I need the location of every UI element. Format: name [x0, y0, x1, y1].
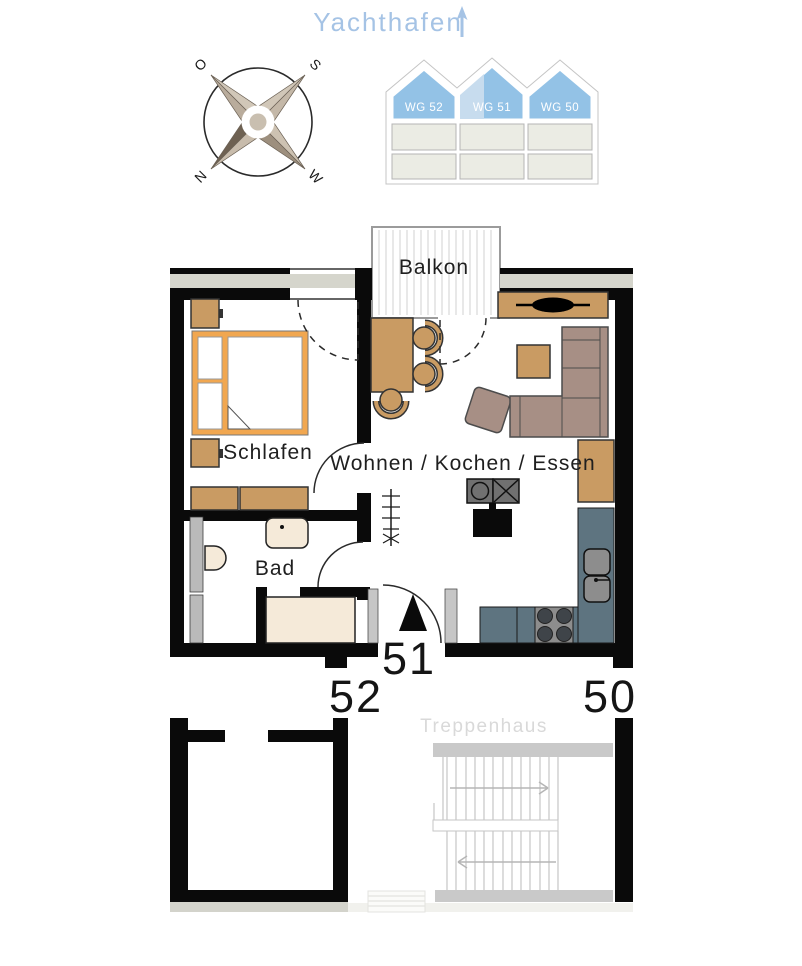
unit-number-right: 50: [583, 671, 637, 722]
entry-steps: [368, 891, 425, 912]
unit-number-left: 52: [329, 671, 383, 722]
room-label-bad: Bad: [255, 557, 295, 580]
floorplan-page: Yachthafen O S N W: [0, 0, 802, 966]
room-label-treppenhaus: Treppenhaus: [420, 716, 548, 737]
coffee-table: [517, 345, 550, 378]
bed: [192, 331, 308, 435]
bath-door-swing: [318, 542, 363, 587]
bedroom: Schlafen: [191, 299, 313, 510]
dining-chair-3: [376, 389, 406, 416]
nightstand-top: [191, 299, 219, 328]
unit-label-wg52: WG 52: [405, 102, 443, 114]
compass-hub-dot: [250, 114, 267, 131]
dining-chair-1: [413, 323, 440, 353]
compass-rose: O S N W: [191, 55, 326, 187]
cooktop-island-icon: [467, 479, 519, 537]
unit-label-wg51: WG 51: [473, 102, 511, 114]
nightstand-bottom: [191, 439, 219, 467]
dining-area: [371, 318, 512, 434]
dresser-right: [240, 487, 308, 510]
entrance-jamb-right: [445, 589, 457, 643]
pouf: [464, 386, 512, 434]
entrance-arrow-icon: [399, 594, 427, 631]
washbasin-icon: [266, 518, 308, 548]
sofa: [510, 327, 608, 437]
bathroom: Bad: [190, 517, 355, 643]
stove-icon: [535, 607, 573, 643]
room-label-wohnen: Wohnen / Kochen / Essen: [330, 452, 595, 475]
compass-label-w: W: [305, 166, 326, 187]
building-key-diagram: WG 52 WG 51 WG 50: [386, 58, 598, 184]
header: Yachthafen: [313, 6, 467, 37]
shower-panel-top: [190, 517, 203, 592]
page-title: Yachthafen: [313, 7, 463, 37]
toilet-icon: [205, 546, 226, 570]
dining-chair-2: [413, 359, 440, 389]
dining-table: [371, 318, 413, 392]
room-label-schlafen: Schlafen: [223, 441, 313, 464]
living-balcony-door-swing: [440, 318, 486, 364]
entrance-jamb-left: [368, 589, 378, 643]
lower-section: Treppenhaus: [170, 716, 633, 912]
compass-label-n: N: [191, 167, 209, 185]
shower-panel-bottom: [190, 595, 203, 643]
staircase: Treppenhaus: [368, 716, 613, 912]
stair-landing: [433, 820, 558, 831]
unit-number-current: 51: [382, 633, 436, 684]
bathtub-icon: [266, 597, 355, 643]
radiator-icon: [382, 489, 400, 546]
compass-label-o: O: [191, 55, 210, 74]
room-label-balkon: Balkon: [399, 256, 469, 279]
balcony: Balkon: [372, 227, 500, 318]
unit-label-wg50: WG 50: [541, 102, 579, 114]
compass-label-s: S: [307, 56, 325, 74]
dresser-left: [191, 487, 238, 510]
